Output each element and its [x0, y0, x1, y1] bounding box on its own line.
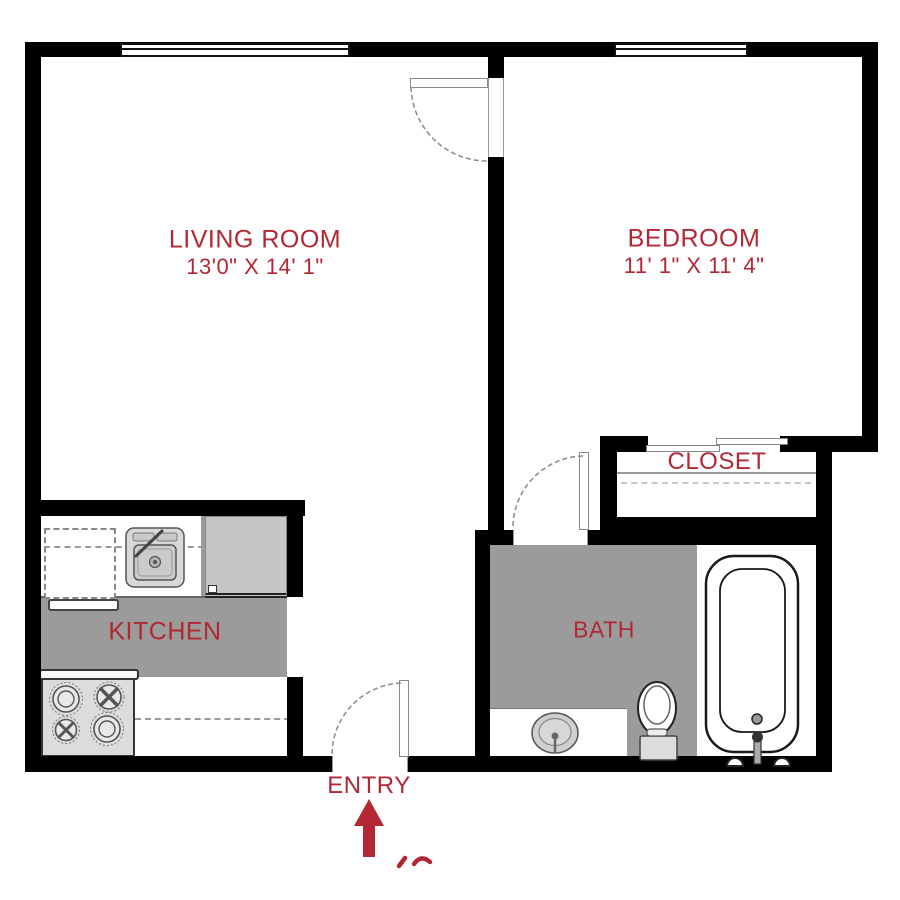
vanity — [490, 708, 627, 757]
entry-door — [399, 680, 409, 757]
bedroom-window — [614, 43, 748, 57]
bedroom-door — [410, 78, 488, 88]
entry-label: ENTRY — [327, 772, 410, 800]
wall-kitchen-right-upper — [287, 500, 303, 597]
partial-text-marks — [399, 858, 430, 866]
counter-front-edge — [48, 599, 119, 611]
wall-bath-top-right — [588, 530, 602, 545]
bedroom-dimensions: 11' 1" X 11' 4" — [624, 253, 765, 279]
refrigerator-handle — [208, 585, 217, 593]
bath-label: BATH — [573, 617, 635, 644]
bedroom-door-opening — [488, 78, 504, 157]
bath-door — [579, 452, 589, 530]
counter-depth-dashline-bottom — [135, 718, 300, 720]
bedroom-label: BEDROOM — [628, 225, 761, 254]
bathtub-alcove — [697, 543, 816, 756]
wall-living-bedroom-divider — [488, 157, 504, 532]
dishwasher-space — [44, 528, 116, 599]
wall-exterior-bottom-left — [25, 756, 332, 772]
closet-label: CLOSET — [667, 448, 766, 476]
bedroom-door-swing-arc — [411, 87, 487, 161]
wall-closet-left — [600, 436, 617, 530]
wall-exterior-bottom-right — [408, 756, 832, 772]
wall-closet-bottom — [600, 517, 832, 545]
wall-exterior-left — [25, 42, 41, 772]
bath-door-swing-arc — [513, 456, 583, 527]
closet-sliding-door-right — [716, 438, 788, 445]
stove — [41, 678, 135, 757]
wall-exterior-right-bedroom — [862, 42, 878, 452]
bath-door-opening — [513, 530, 588, 545]
window-mullion — [616, 48, 746, 50]
counter-depth-dashline — [44, 546, 204, 548]
wall-kitchen-right-lower — [287, 677, 303, 756]
entry-door-opening — [332, 756, 408, 772]
entry-arrow-icon — [354, 799, 384, 857]
wall-bath-left — [475, 530, 490, 756]
living-room-label: LIVING ROOM — [169, 226, 341, 255]
entry-door-swing-arc — [332, 683, 403, 754]
living-room-dimensions: 13'0" X 14' 1" — [186, 254, 323, 280]
kitchen-label: KITCHEN — [108, 618, 221, 647]
floor-plan: LIVING ROOM 13'0" X 14' 1" BEDROOM 11' 1… — [0, 0, 900, 900]
wall-kitchen-top — [25, 500, 305, 516]
kitchen-counter-bottom — [132, 677, 287, 756]
refrigerator — [205, 516, 287, 598]
wall-divider-top-stub — [488, 57, 504, 78]
wall-exterior-right-bath — [816, 436, 832, 772]
window-mullion — [122, 48, 348, 50]
closet-rod — [621, 482, 811, 484]
living-room-window — [120, 43, 350, 57]
